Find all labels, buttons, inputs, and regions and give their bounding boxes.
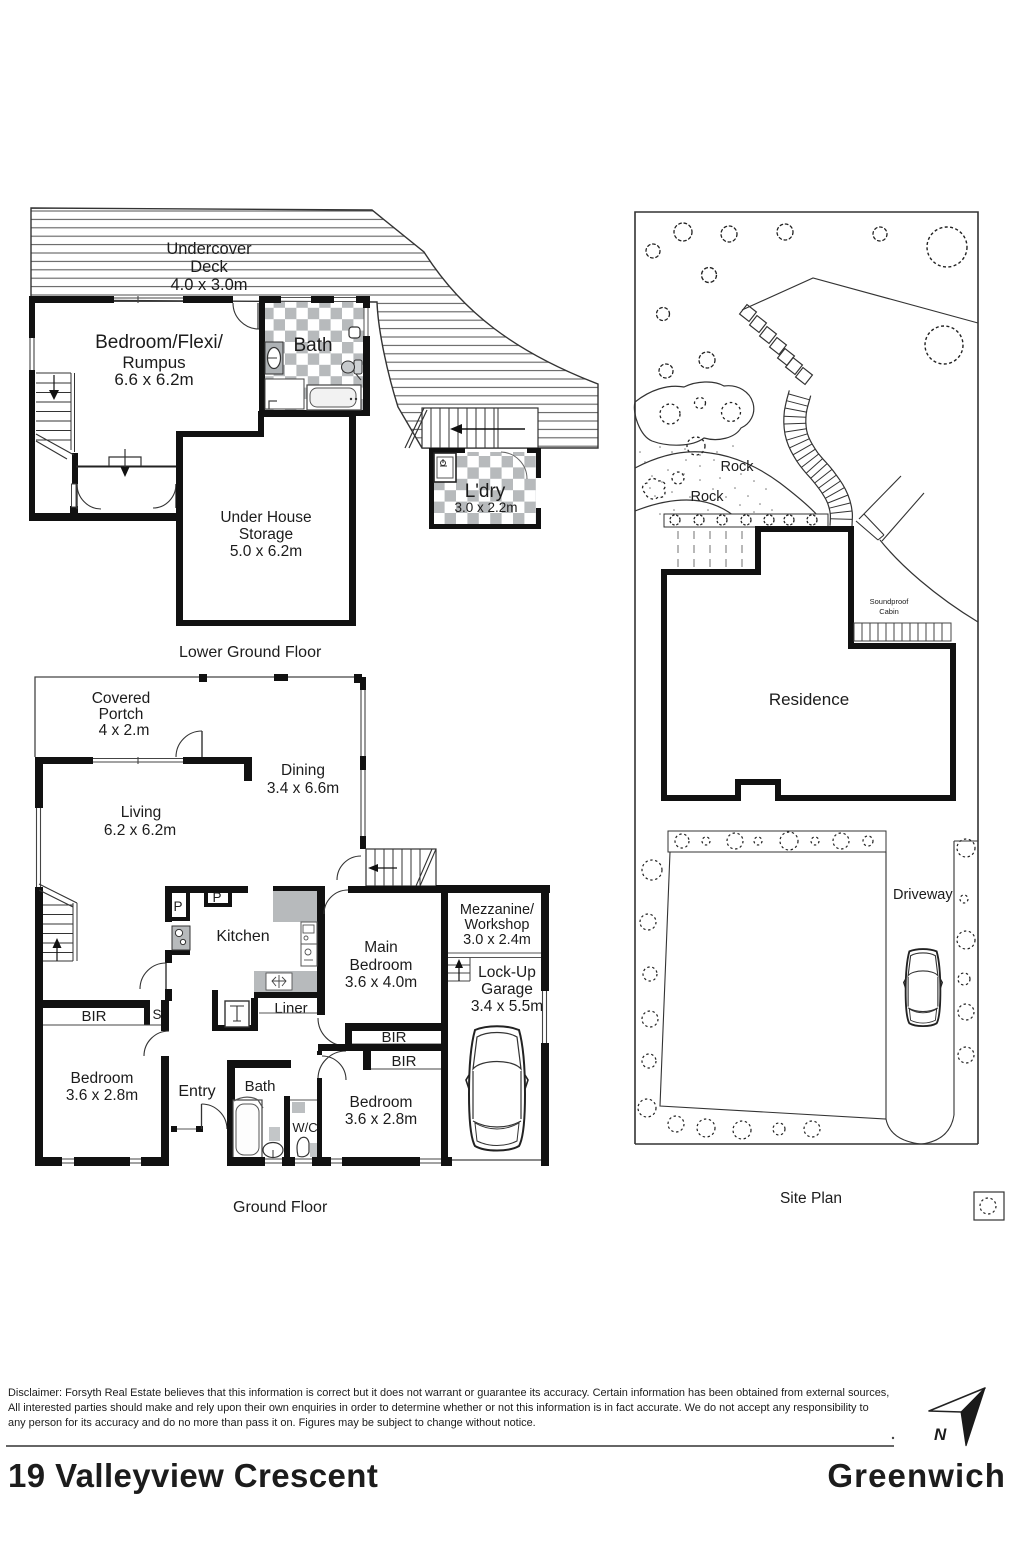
svg-text:Greenwich: Greenwich — [827, 1457, 1006, 1494]
svg-text:4.0 x 3.0m: 4.0 x 3.0m — [170, 276, 247, 294]
svg-text:6.2 x 6.2m: 6.2 x 6.2m — [104, 822, 176, 839]
svg-text:Undercover: Undercover — [166, 240, 252, 258]
svg-text:5.0 x 6.2m: 5.0 x 6.2m — [230, 543, 302, 560]
svg-text:Bedroom: Bedroom — [71, 1070, 134, 1087]
svg-text:3.0 x 2.2m: 3.0 x 2.2m — [454, 500, 517, 515]
svg-text:W/C: W/C — [292, 1120, 317, 1135]
svg-text:Deck: Deck — [190, 258, 228, 276]
svg-text:Disclaimer: Forsyth Real Estat: Disclaimer: Forsyth Real Estate believes… — [8, 1387, 889, 1399]
svg-text:Bedroom: Bedroom — [350, 957, 413, 974]
svg-text:BIR: BIR — [381, 1029, 406, 1046]
svg-text:Garage: Garage — [481, 981, 533, 998]
svg-text:Bath: Bath — [245, 1078, 276, 1095]
svg-text:Storage: Storage — [239, 526, 293, 543]
svg-text:Driveway: Driveway — [893, 887, 953, 903]
svg-text:Lock-Up: Lock-Up — [478, 964, 536, 981]
svg-text:Cabin: Cabin — [879, 607, 899, 616]
svg-text:3.0 x 2.4m: 3.0 x 2.4m — [463, 932, 531, 948]
svg-text:BIR: BIR — [391, 1053, 416, 1070]
svg-text:3.6 x 2.8m: 3.6 x 2.8m — [66, 1087, 138, 1104]
svg-text:3.6 x 2.8m: 3.6 x 2.8m — [345, 1111, 417, 1128]
svg-text:19 Valleyview Crescent: 19 Valleyview Crescent — [8, 1457, 378, 1494]
svg-text:P: P — [212, 890, 221, 905]
svg-text:P: P — [173, 899, 182, 914]
svg-text:Bath: Bath — [293, 335, 332, 356]
svg-text:Bedroom: Bedroom — [350, 1094, 413, 1111]
svg-text:Dining: Dining — [281, 762, 325, 779]
svg-text:Site Plan: Site Plan — [780, 1190, 842, 1207]
svg-text:Rock: Rock — [720, 459, 754, 475]
svg-text:Kitchen: Kitchen — [216, 928, 269, 945]
svg-text:3.4 x 5.5m: 3.4 x 5.5m — [471, 998, 543, 1015]
svg-text:BIR: BIR — [81, 1008, 106, 1025]
svg-text:Under House: Under House — [220, 509, 311, 526]
svg-text:S: S — [152, 1007, 161, 1022]
svg-text:Liner: Liner — [274, 1000, 307, 1017]
svg-text:Bedroom/Flexi/: Bedroom/Flexi/ — [95, 332, 223, 353]
svg-text:Workshop: Workshop — [464, 917, 529, 933]
svg-text:6.6 x 6.2m: 6.6 x 6.2m — [114, 370, 193, 389]
svg-text:Main: Main — [364, 939, 398, 956]
svg-text:Ground Floor: Ground Floor — [233, 1199, 328, 1216]
svg-text:Living: Living — [121, 804, 162, 821]
svg-text:Residence: Residence — [769, 690, 849, 709]
svg-text:4 x 2.m: 4 x 2.m — [99, 722, 150, 739]
svg-text:Entry: Entry — [178, 1083, 215, 1100]
svg-text:any person for its accuracy an: any person for its accuracy and do no mo… — [8, 1417, 536, 1429]
svg-text:Covered: Covered — [92, 690, 151, 707]
svg-text:L'dry: L'dry — [465, 481, 506, 502]
svg-text:3.4 x 6.6m: 3.4 x 6.6m — [267, 780, 339, 797]
svg-text:Rock: Rock — [690, 489, 724, 505]
svg-text:3.6 x 4.0m: 3.6 x 4.0m — [345, 974, 417, 991]
svg-text:Soundproof: Soundproof — [870, 597, 910, 606]
svg-text:Portch: Portch — [99, 706, 144, 723]
svg-text:All interested parties should: All interested parties should make and r… — [8, 1402, 869, 1414]
svg-text:Mezzanine/: Mezzanine/ — [460, 902, 535, 918]
svg-text:N: N — [934, 1425, 947, 1444]
svg-text:Lower Ground Floor: Lower Ground Floor — [179, 644, 322, 661]
